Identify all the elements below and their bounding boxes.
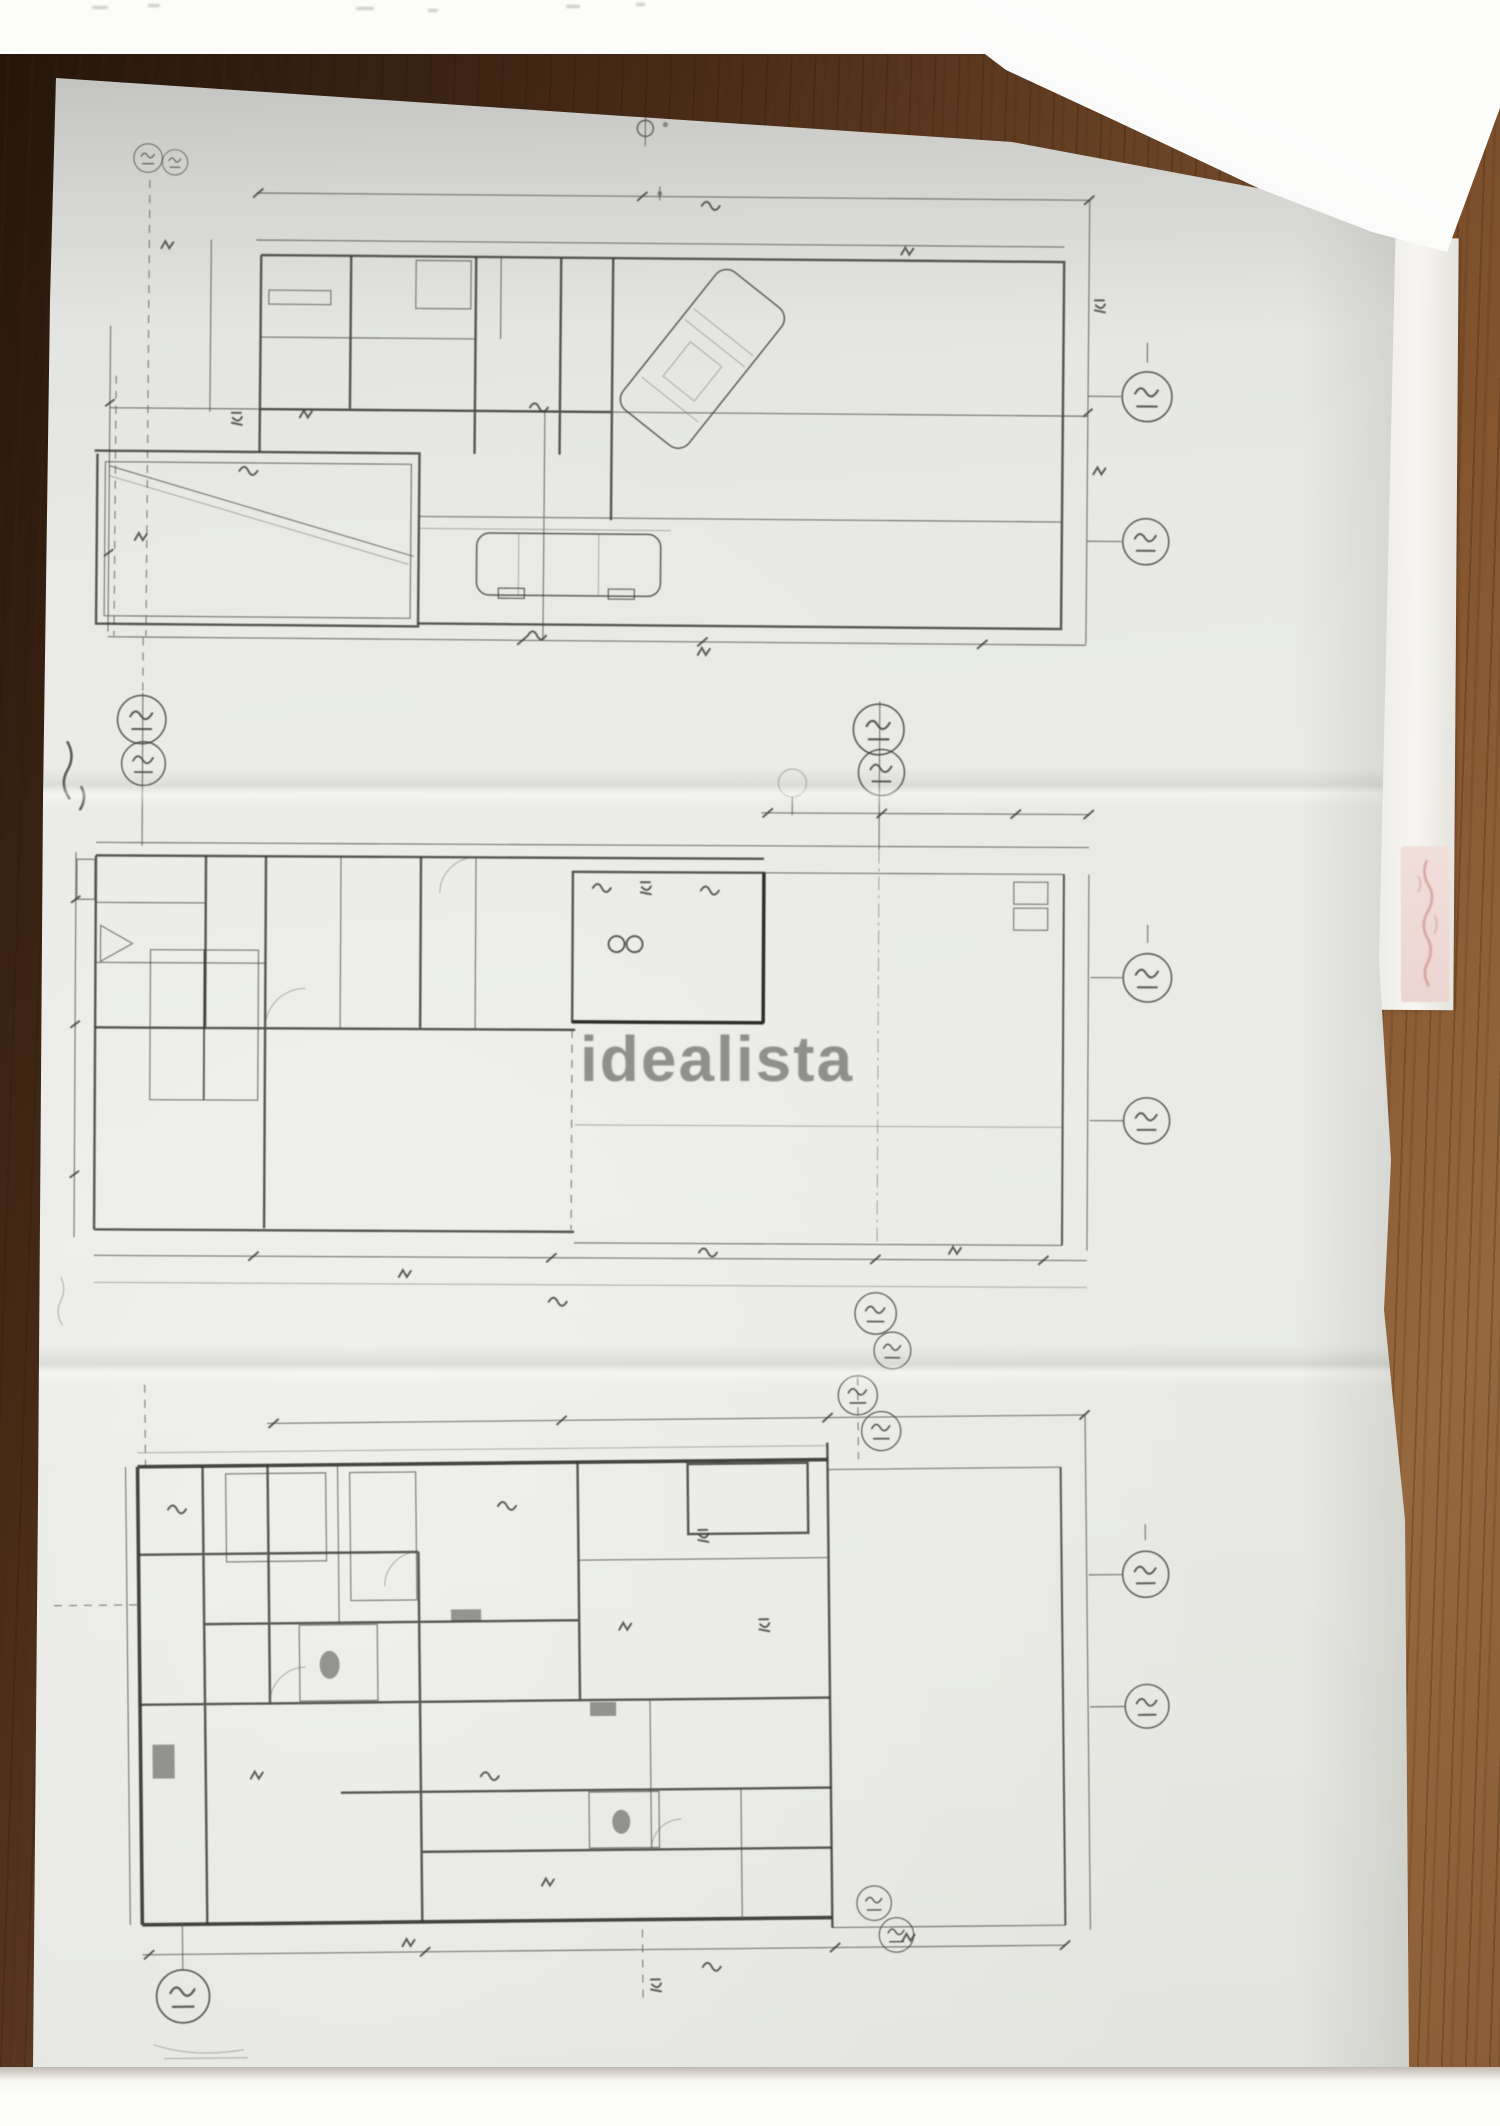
ghost-print-mark: [428, 9, 438, 12]
tiled-area: [688, 1463, 809, 1534]
paper-fold-crease: [0, 1346, 1500, 1386]
ghost-print-mark: [92, 6, 108, 9]
car-horizontal: [476, 533, 661, 600]
floor-plan-middle: [58, 637, 1174, 1370]
floor-plan-bottom: [52, 1372, 1174, 2059]
tiled-area: [572, 872, 764, 1023]
ghost-print-mark: [148, 4, 160, 7]
ghost-print-mark: [356, 7, 374, 10]
stairs-hatch: [226, 1473, 327, 1562]
ghost-print-mark: [636, 3, 645, 6]
photo-of-floorplans: { "watermark": { "text": "idealista" }, …: [0, 0, 1500, 2126]
paper-fold-crease: [0, 768, 1500, 808]
margin-handwriting: [58, 1277, 64, 1325]
sticky-note-handwriting: [1401, 846, 1449, 1002]
bottom-sheet-edge: [0, 2067, 1500, 2126]
idealista-watermark: idealista: [580, 1022, 854, 1096]
pink-sticky-tab: [1401, 846, 1449, 1002]
ghost-print-mark: [566, 5, 580, 8]
main-floorplan-paper: idealista: [0, 0, 1500, 2126]
stairs-hatch: [350, 1472, 417, 1601]
level-marker-triangle: [100, 925, 132, 961]
